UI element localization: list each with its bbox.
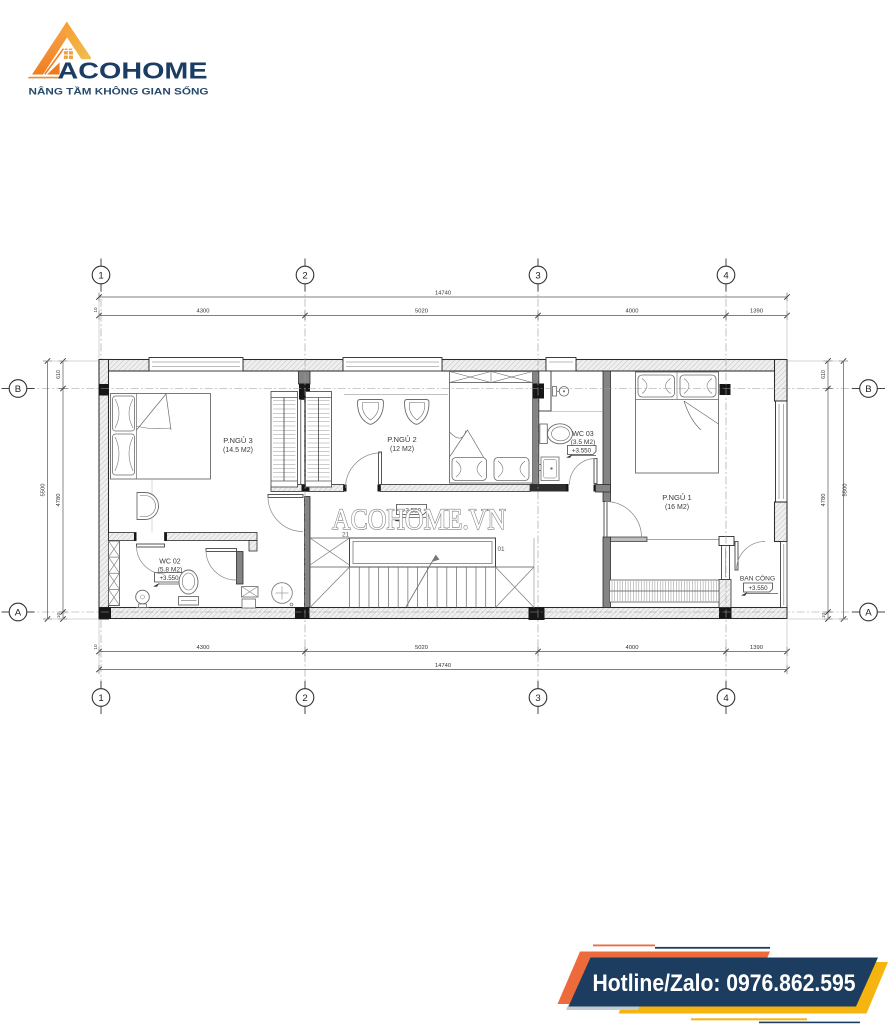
svg-text:10: 10 (93, 644, 98, 650)
svg-text:3: 3 (535, 693, 540, 704)
svg-text:4000: 4000 (626, 645, 639, 651)
svg-text:P.NGỦ 2: P.NGỦ 2 (387, 435, 416, 444)
svg-text:+3.550: +3.550 (572, 447, 592, 454)
svg-text:A: A (15, 607, 22, 618)
svg-text:A: A (865, 607, 872, 618)
svg-text:(3.5 M2): (3.5 M2) (571, 439, 596, 446)
svg-text:10: 10 (93, 307, 98, 313)
svg-text:10: 10 (821, 613, 826, 619)
svg-text:4: 4 (723, 270, 729, 281)
svg-text:1: 1 (98, 693, 103, 704)
svg-text:1390: 1390 (750, 309, 763, 315)
svg-text:WC 02: WC 02 (159, 559, 181, 566)
svg-text:4300: 4300 (197, 645, 210, 651)
svg-text:610: 610 (821, 370, 827, 379)
svg-text:610: 610 (56, 370, 62, 379)
svg-text:4300: 4300 (197, 309, 210, 315)
svg-text:4000: 4000 (626, 309, 639, 315)
svg-text:5020: 5020 (415, 309, 428, 315)
svg-text:WC 03: WC 03 (572, 431, 594, 438)
svg-text:BAN CÔNG: BAN CÔNG (740, 574, 775, 583)
svg-text:1390: 1390 (750, 645, 763, 651)
svg-text:5020: 5020 (415, 645, 428, 651)
svg-text:P.NGỦ 3: P.NGỦ 3 (223, 436, 252, 445)
svg-text:ACOHOME.VN: ACOHOME.VN (332, 503, 506, 536)
svg-text:3: 3 (535, 270, 540, 281)
svg-text:ACOHOME: ACOHOME (58, 58, 208, 84)
svg-text:4780: 4780 (821, 494, 827, 507)
svg-text:2: 2 (302, 693, 307, 704)
svg-text:01: 01 (497, 546, 505, 553)
svg-text:14740: 14740 (435, 291, 451, 297)
svg-text:5500: 5500 (843, 484, 849, 497)
svg-text:14740: 14740 (435, 663, 451, 669)
svg-text:Hotline/Zalo: 0976.862.595: Hotline/Zalo: 0976.862.595 (593, 970, 856, 997)
svg-text:+3.550: +3.550 (748, 585, 768, 592)
svg-text:NÂNG TẦM KHÔNG GIAN SỐNG: NÂNG TẦM KHÔNG GIAN SỐNG (29, 86, 209, 98)
svg-text:P.NGỦ 1: P.NGỦ 1 (662, 493, 691, 502)
svg-text:5500: 5500 (41, 484, 47, 497)
svg-text:4: 4 (723, 693, 729, 704)
svg-text:10: 10 (56, 613, 61, 619)
svg-text:1: 1 (98, 270, 103, 281)
svg-text:(14.5 M2): (14.5 M2) (223, 447, 253, 454)
svg-text:(12 M2): (12 M2) (390, 446, 414, 453)
svg-text:B: B (15, 384, 21, 395)
svg-text:B: B (865, 384, 871, 395)
svg-text:+3.550: +3.550 (159, 575, 179, 582)
svg-text:(16 M2): (16 M2) (665, 504, 689, 511)
svg-text:2: 2 (302, 270, 307, 281)
svg-text:4780: 4780 (56, 494, 62, 507)
